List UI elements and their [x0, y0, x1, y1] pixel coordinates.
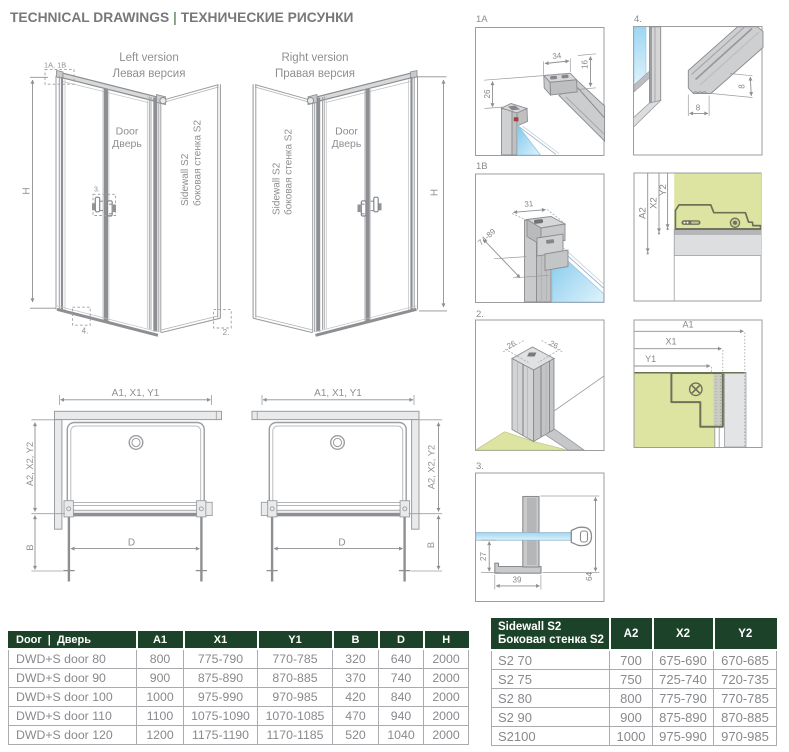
svg-text:2.: 2. — [476, 309, 484, 320]
svg-text:боковая стенка S2: боковая стенка S2 — [192, 120, 204, 206]
svg-text:Sidewall S2: Sidewall S2 — [272, 162, 283, 215]
svg-text:64: 64 — [585, 572, 594, 581]
svg-text:39: 39 — [513, 576, 522, 585]
svg-text:A1: A1 — [682, 320, 693, 330]
svg-text:2.: 2. — [223, 328, 230, 337]
svg-text:A1, X1, Y1: A1, X1, Y1 — [112, 388, 160, 399]
svg-text:D: D — [338, 538, 345, 549]
svg-text:Правая версия: Правая версия — [275, 68, 355, 80]
svg-text:B: B — [426, 542, 436, 548]
svg-text:Sidewall S2: Sidewall S2 — [180, 153, 191, 206]
svg-text:31: 31 — [524, 199, 534, 209]
svg-text:1B: 1B — [476, 161, 488, 172]
svg-text:3.: 3. — [94, 187, 100, 194]
svg-text:3.: 3. — [476, 461, 484, 472]
svg-text:8: 8 — [696, 104, 701, 113]
svg-text:A1, X1, Y1: A1, X1, Y1 — [314, 388, 362, 399]
svg-text:Дверь: Дверь — [332, 138, 362, 150]
svg-text:Дверь: Дверь — [112, 138, 142, 150]
svg-text:Left version: Left version — [119, 52, 178, 64]
svg-text:TECHNICAL DRAWINGS | ТЕХНИЧЕСК: TECHNICAL DRAWINGS | ТЕХНИЧЕСКИЕ РИСУНКИ — [10, 10, 353, 25]
svg-text:34: 34 — [552, 51, 562, 61]
svg-text:Door: Door — [335, 126, 358, 138]
svg-text:8: 8 — [738, 84, 747, 89]
svg-text:X2: X2 — [649, 197, 660, 209]
svg-text:D: D — [128, 538, 135, 549]
svg-text:B: B — [25, 544, 35, 550]
svg-text:A2, X2, Y2: A2, X2, Y2 — [25, 442, 35, 486]
svg-text:Y2: Y2 — [658, 184, 669, 196]
svg-text:Door: Door — [116, 126, 139, 138]
svg-text:1A, 1B: 1A, 1B — [44, 61, 66, 70]
svg-text:H: H — [22, 187, 33, 194]
svg-text:Левая версия: Левая версия — [113, 68, 186, 80]
svg-text:Right version: Right version — [281, 52, 348, 64]
svg-text:4.: 4. — [634, 14, 642, 25]
svg-text:26: 26 — [483, 89, 492, 98]
svg-text:4.: 4. — [82, 327, 89, 336]
svg-text:16: 16 — [581, 60, 590, 69]
svg-text:27: 27 — [479, 552, 488, 561]
svg-text:A2, X2, Y2: A2, X2, Y2 — [427, 445, 437, 489]
svg-text:Y1: Y1 — [645, 354, 656, 364]
svg-text:1A: 1A — [476, 14, 488, 25]
svg-text:A2: A2 — [638, 207, 649, 219]
svg-text:H: H — [430, 189, 441, 196]
svg-text:боковая стенка S2: боковая стенка S2 — [283, 129, 295, 215]
svg-text:X1: X1 — [665, 337, 676, 347]
